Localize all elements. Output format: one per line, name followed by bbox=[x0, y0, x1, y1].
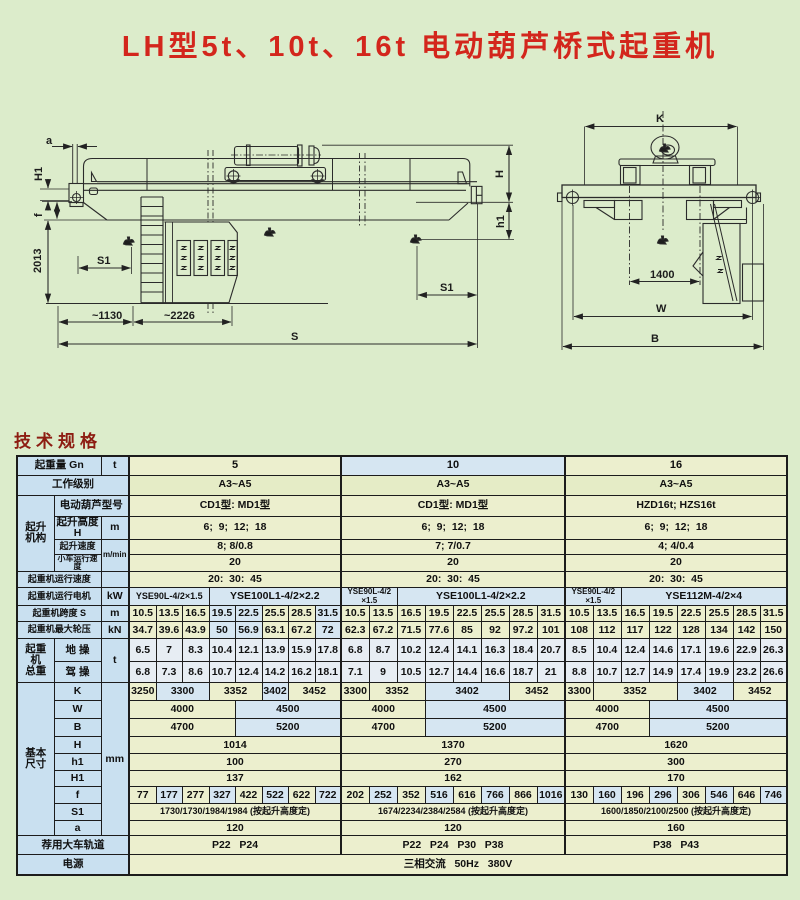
svg-text:W: W bbox=[656, 303, 667, 315]
svg-text:2013: 2013 bbox=[32, 249, 44, 273]
svg-text:h1: h1 bbox=[495, 215, 507, 228]
svg-text:f: f bbox=[33, 213, 45, 217]
svg-text:~1130: ~1130 bbox=[92, 310, 122, 322]
svg-text:B: B bbox=[651, 333, 659, 345]
svg-text:a: a bbox=[46, 135, 53, 147]
svg-text:S1: S1 bbox=[97, 255, 110, 267]
svg-text:K: K bbox=[656, 113, 664, 125]
svg-text:S: S bbox=[291, 331, 298, 343]
svg-text:1400: 1400 bbox=[650, 269, 674, 281]
svg-text:H1: H1 bbox=[33, 167, 45, 181]
svg-text:S1: S1 bbox=[440, 282, 453, 294]
svg-text:H: H bbox=[494, 170, 506, 178]
svg-text:~2226: ~2226 bbox=[164, 310, 195, 322]
